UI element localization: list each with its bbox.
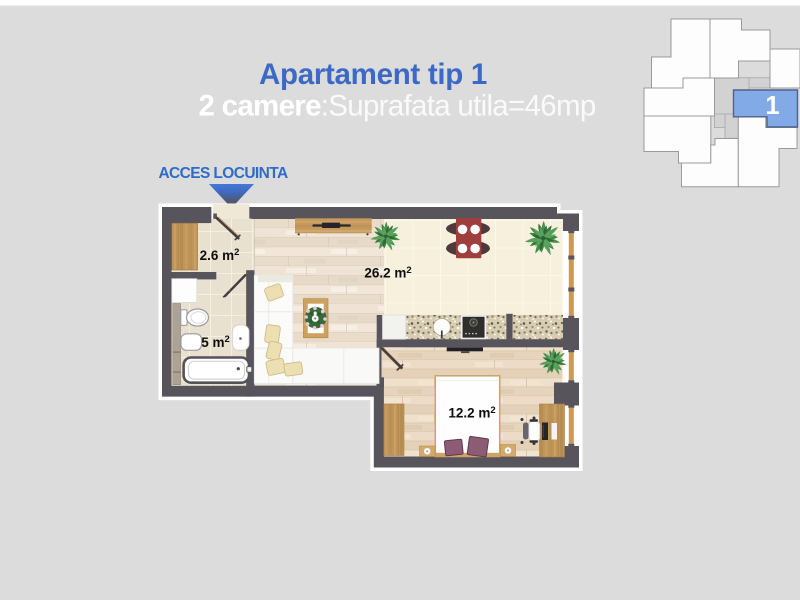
svg-text:Apartament tip 1: Apartament tip 1 <box>259 58 487 91</box>
svg-text:26.2 m2: 26.2 m2 <box>364 265 411 281</box>
svg-text:ACCES LOCUINTA: ACCES LOCUINTA <box>158 165 287 182</box>
svg-text:2 camere:Suprafata utila=46mp: 2 camere:Suprafata utila=46mp <box>198 90 595 123</box>
svg-text:12.2 m2: 12.2 m2 <box>448 405 495 421</box>
svg-text:2.6 m2: 2.6 m2 <box>200 247 240 263</box>
svg-text:1: 1 <box>765 92 779 120</box>
